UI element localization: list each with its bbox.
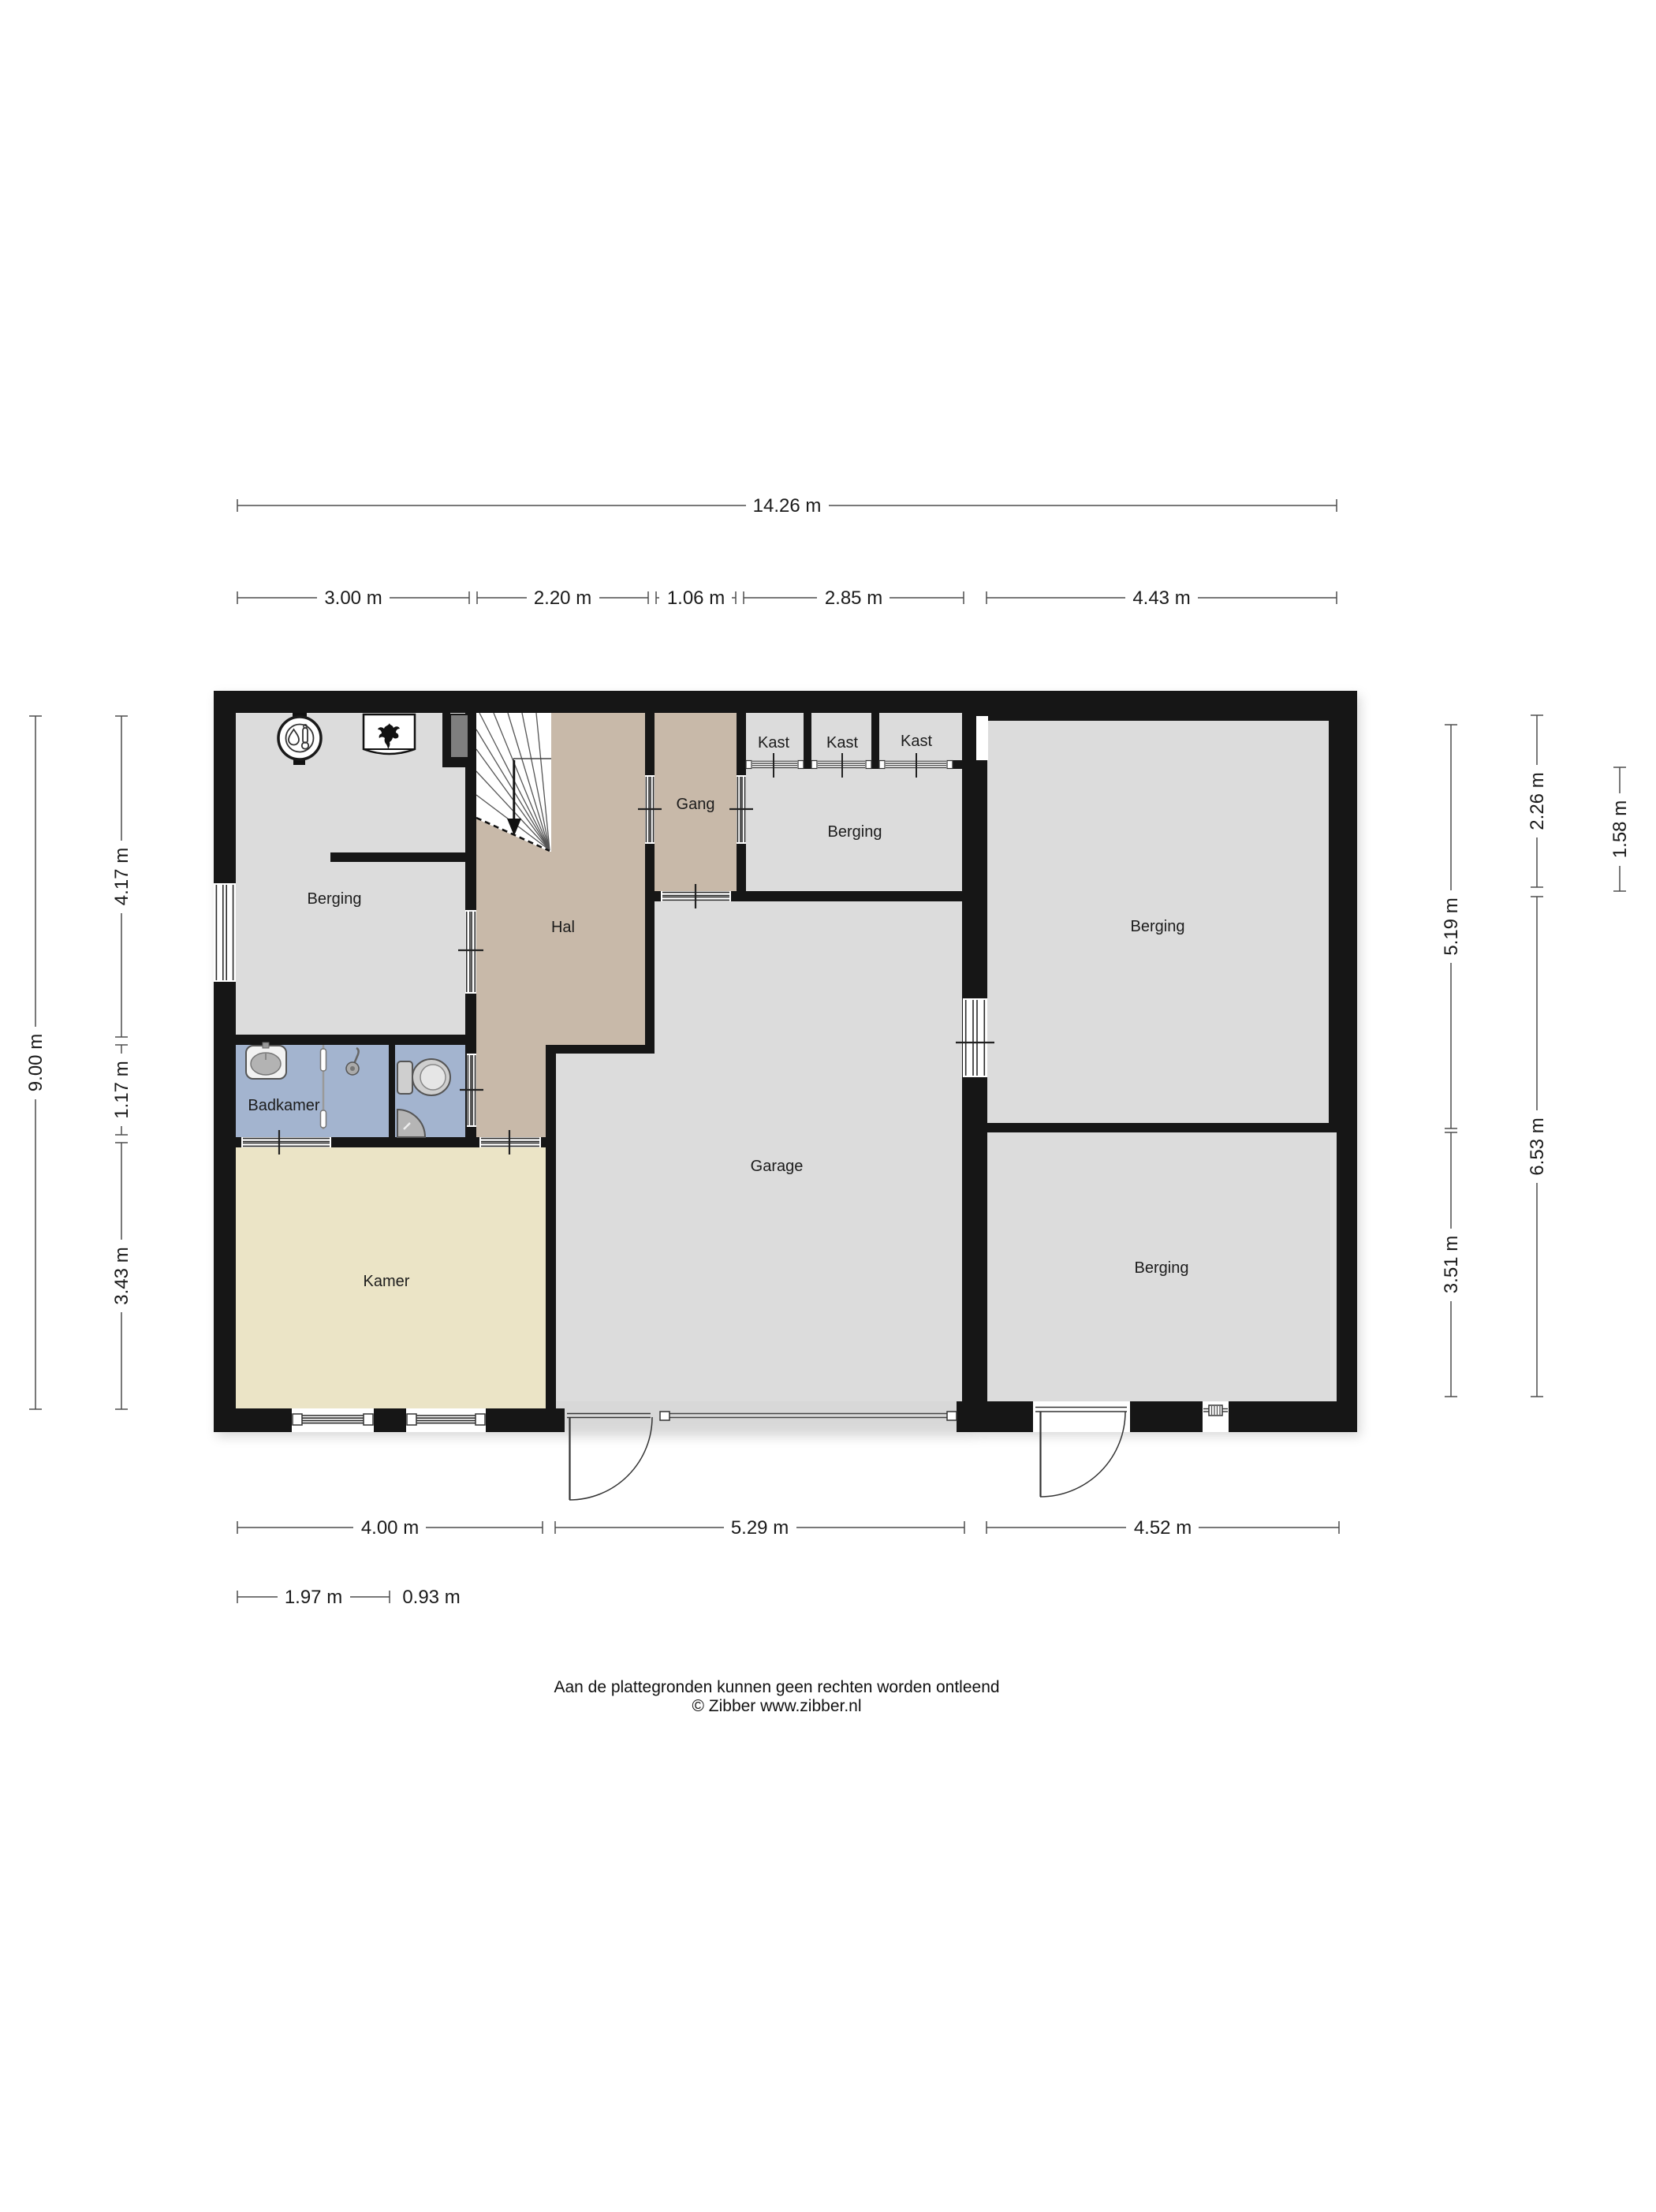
svg-text:4.52 m: 4.52 m (1134, 1517, 1192, 1539)
svg-text:Berging: Berging (1131, 918, 1185, 935)
svg-text:4.17 m: 4.17 m (111, 848, 132, 905)
svg-text:Berging: Berging (308, 890, 362, 908)
svg-text:Berging: Berging (1135, 1259, 1189, 1277)
svg-text:4.43 m: 4.43 m (1132, 588, 1190, 609)
svg-text:1.58 m: 1.58 m (1609, 800, 1631, 858)
svg-text:9.00 m: 9.00 m (25, 1034, 47, 1091)
svg-text:Kast: Kast (901, 733, 932, 750)
svg-text:0.93 m: 0.93 m (402, 1587, 460, 1608)
svg-text:Garage: Garage (751, 1158, 804, 1175)
svg-text:1.97 m: 1.97 m (285, 1587, 342, 1608)
svg-text:5.29 m: 5.29 m (731, 1517, 789, 1539)
svg-text:Aan de plattegronden kunnen ge: Aan de plattegronden kunnen geen rechten… (554, 1678, 999, 1696)
svg-text:1.17 m: 1.17 m (111, 1061, 132, 1118)
svg-text:Hal: Hal (551, 919, 575, 936)
svg-text:1.06 m: 1.06 m (667, 588, 725, 609)
svg-text:Kast: Kast (758, 734, 789, 752)
svg-text:Gang: Gang (677, 796, 715, 813)
svg-text:2.26 m: 2.26 m (1527, 772, 1548, 830)
svg-text:© Zibber www.zibber.nl: © Zibber www.zibber.nl (692, 1697, 861, 1715)
svg-text:2.85 m: 2.85 m (825, 588, 882, 609)
svg-text:3.51 m: 3.51 m (1441, 1236, 1462, 1293)
svg-text:6.53 m: 6.53 m (1527, 1117, 1548, 1175)
svg-text:4.00 m: 4.00 m (361, 1517, 419, 1539)
svg-text:14.26 m: 14.26 m (753, 495, 822, 517)
svg-text:3.00 m: 3.00 m (324, 588, 382, 609)
svg-text:Berging: Berging (828, 823, 882, 841)
svg-text:Badkamer: Badkamer (248, 1097, 319, 1114)
svg-text:2.20 m: 2.20 m (534, 588, 591, 609)
svg-text:3.43 m: 3.43 m (111, 1247, 132, 1304)
svg-text:5.19 m: 5.19 m (1441, 897, 1462, 955)
svg-text:Kamer: Kamer (364, 1273, 410, 1290)
svg-text:Kast: Kast (826, 734, 858, 752)
